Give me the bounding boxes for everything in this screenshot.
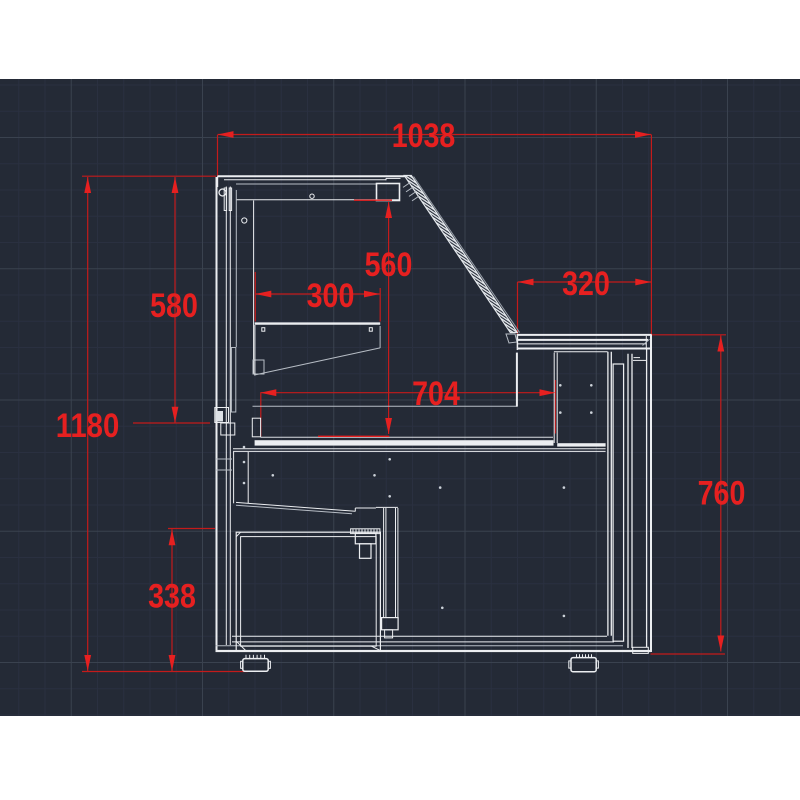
- svg-text:300: 300: [307, 277, 355, 315]
- svg-text:704: 704: [412, 375, 460, 413]
- svg-text:320: 320: [562, 265, 610, 303]
- svg-text:1180: 1180: [56, 407, 120, 445]
- svg-text:760: 760: [698, 474, 746, 512]
- svg-text:580: 580: [150, 287, 198, 325]
- svg-text:560: 560: [365, 246, 413, 284]
- svg-text:1038: 1038: [392, 117, 456, 155]
- svg-text:338: 338: [148, 577, 196, 615]
